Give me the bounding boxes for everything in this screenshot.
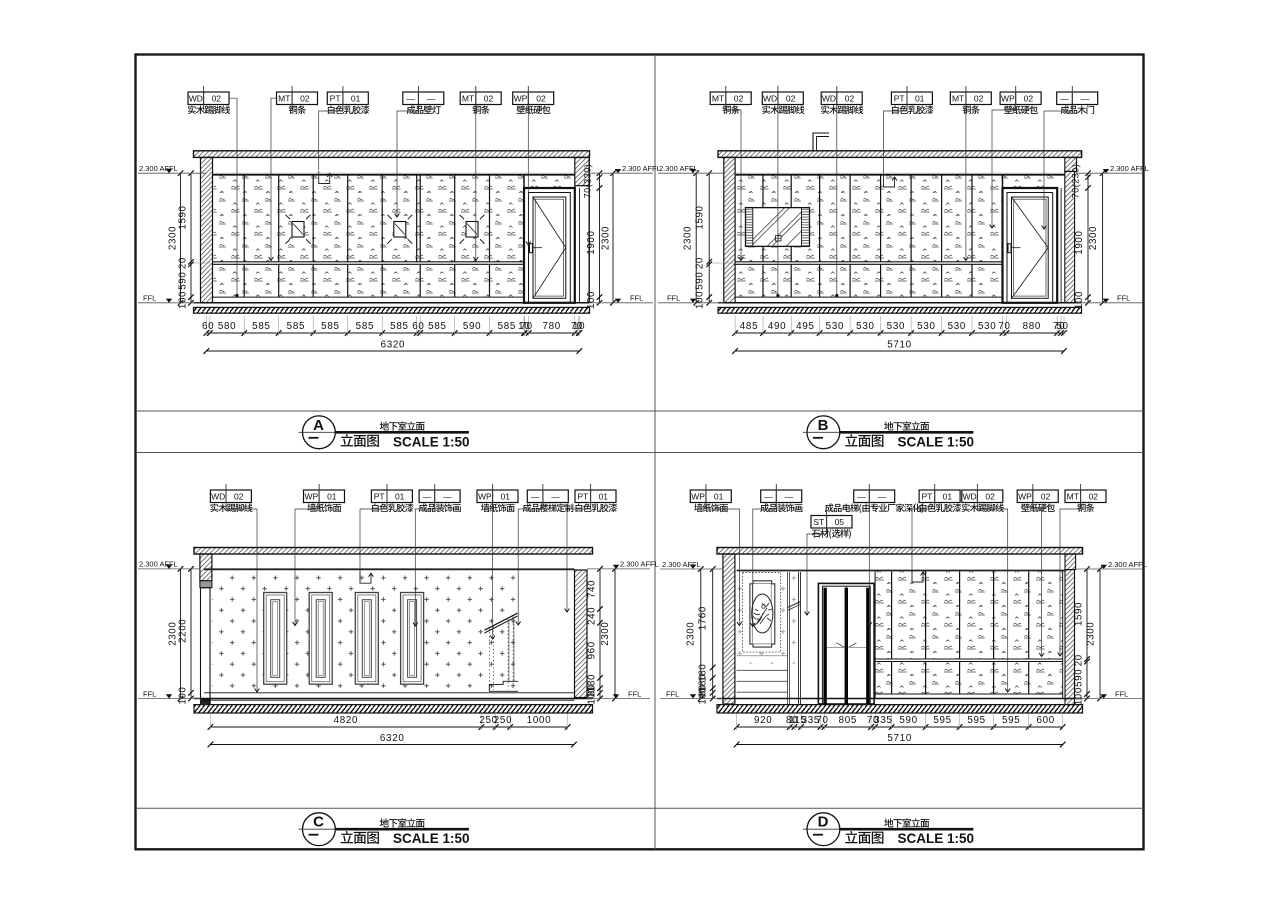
svg-text:70: 70	[998, 321, 1010, 332]
svg-text:585: 585	[498, 321, 516, 332]
svg-text:MT: MT	[462, 93, 474, 103]
svg-text:595: 595	[933, 715, 951, 726]
svg-text:D: D	[818, 814, 829, 831]
svg-text:20: 20	[178, 257, 189, 269]
svg-text:530: 530	[948, 321, 966, 332]
svg-text:585: 585	[428, 321, 446, 332]
svg-text:—: —	[785, 491, 794, 501]
svg-text:MT: MT	[952, 93, 964, 103]
svg-text:590: 590	[178, 272, 189, 290]
svg-text:WD: WD	[822, 93, 836, 103]
svg-text:2.300 AFFL: 2.300 AFFL	[1110, 164, 1149, 173]
svg-text:10: 10	[573, 321, 585, 332]
svg-text:SCALE 1:50: SCALE 1:50	[393, 434, 470, 449]
svg-text:—: —	[878, 491, 887, 501]
svg-text:805: 805	[839, 715, 857, 726]
svg-text:05: 05	[835, 517, 845, 527]
svg-text:4820: 4820	[334, 715, 359, 726]
svg-text:—: —	[406, 93, 415, 103]
svg-text:5710: 5710	[887, 733, 912, 744]
svg-text:2300: 2300	[600, 226, 611, 250]
svg-text:530: 530	[826, 321, 844, 332]
svg-text:50: 50	[1056, 321, 1068, 332]
svg-text:—: —	[531, 491, 540, 501]
svg-text:02: 02	[985, 491, 995, 501]
svg-text:495: 495	[796, 321, 814, 332]
svg-text:2.300 AFFL: 2.300 AFFL	[139, 560, 178, 569]
svg-text:FFL: FFL	[667, 294, 680, 303]
svg-text:MT: MT	[1067, 491, 1079, 501]
svg-text:02: 02	[234, 491, 244, 501]
svg-text:60: 60	[412, 321, 424, 332]
svg-text:590: 590	[899, 715, 917, 726]
svg-text:02: 02	[786, 93, 796, 103]
svg-text:2300: 2300	[1086, 622, 1097, 646]
svg-text:585: 585	[287, 321, 305, 332]
svg-text:WD: WD	[211, 491, 225, 501]
svg-text:FFL: FFL	[630, 294, 643, 303]
svg-text:01: 01	[351, 93, 361, 103]
svg-text:740: 740	[587, 580, 598, 598]
svg-text:MT: MT	[712, 93, 724, 103]
svg-text:2.300 AFFL: 2.300 AFFL	[620, 560, 659, 569]
svg-text:1000: 1000	[527, 715, 552, 726]
svg-text:MT: MT	[278, 93, 290, 103]
svg-text:PT: PT	[921, 491, 932, 501]
svg-text:WD: WD	[189, 93, 203, 103]
svg-text:02: 02	[1024, 93, 1034, 103]
svg-text:600: 600	[1036, 715, 1054, 726]
svg-text:100: 100	[1074, 291, 1085, 309]
svg-text:100: 100	[1074, 687, 1085, 705]
svg-text:2200: 2200	[178, 619, 189, 643]
svg-text:100: 100	[697, 687, 708, 705]
svg-text:780: 780	[542, 321, 560, 332]
svg-text:02: 02	[974, 93, 984, 103]
svg-text:530: 530	[856, 321, 874, 332]
svg-text:530: 530	[917, 321, 935, 332]
svg-text:WP: WP	[514, 93, 528, 103]
svg-text:250: 250	[494, 715, 512, 726]
svg-text:595: 595	[967, 715, 985, 726]
svg-text:2300: 2300	[600, 622, 611, 646]
svg-text:A: A	[313, 417, 324, 434]
svg-text:2.300 AFFL: 2.300 AFFL	[139, 164, 178, 173]
svg-text:5710: 5710	[887, 340, 912, 351]
svg-text:590: 590	[1074, 669, 1085, 687]
svg-text:C: C	[313, 814, 324, 831]
svg-text:6320: 6320	[380, 733, 405, 744]
svg-text:585: 585	[321, 321, 339, 332]
svg-text:WD: WD	[763, 93, 777, 103]
svg-text:B: B	[818, 417, 829, 434]
svg-text:1590: 1590	[1074, 602, 1085, 626]
svg-text:60: 60	[202, 321, 214, 332]
svg-text:—: —	[764, 491, 773, 501]
svg-text:01: 01	[915, 93, 925, 103]
svg-text:590: 590	[463, 321, 481, 332]
svg-text:02: 02	[1041, 491, 1051, 501]
svg-text:02: 02	[1089, 491, 1099, 501]
svg-text:595: 595	[1002, 715, 1020, 726]
svg-text:FFL: FFL	[666, 689, 679, 698]
svg-text:1900: 1900	[1074, 230, 1085, 254]
svg-text:FFL: FFL	[143, 294, 156, 303]
svg-text:—: —	[443, 491, 452, 501]
svg-text:SCALE 1:50: SCALE 1:50	[393, 831, 470, 846]
svg-text:485: 485	[740, 321, 758, 332]
svg-text:2300: 2300	[168, 226, 179, 250]
svg-text:1900: 1900	[586, 230, 597, 254]
svg-text:PT: PT	[577, 491, 588, 501]
svg-text:2.300 AFFL: 2.300 AFFL	[659, 164, 698, 173]
svg-text:01: 01	[714, 491, 724, 501]
svg-text:WP: WP	[304, 491, 318, 501]
svg-text:70(230): 70(230)	[1071, 164, 1081, 199]
svg-text:2.300 AFFL: 2.300 AFFL	[622, 164, 661, 173]
svg-text:02: 02	[845, 93, 855, 103]
svg-text:240: 240	[587, 607, 598, 625]
svg-text:WP: WP	[1001, 93, 1015, 103]
svg-text:02: 02	[300, 93, 310, 103]
svg-text:490: 490	[768, 321, 786, 332]
svg-text:530: 530	[887, 321, 905, 332]
svg-text:335: 335	[874, 715, 892, 726]
svg-text:WP: WP	[691, 491, 705, 501]
svg-text:70: 70	[816, 715, 828, 726]
svg-text:2300: 2300	[1088, 226, 1099, 250]
svg-text:FFL: FFL	[1115, 689, 1128, 698]
svg-text:1760: 1760	[697, 606, 708, 630]
svg-text:FFL: FFL	[143, 689, 156, 698]
svg-text:WP: WP	[1018, 491, 1032, 501]
svg-text:SCALE 1:50: SCALE 1:50	[898, 831, 975, 846]
svg-text:FFL: FFL	[628, 689, 641, 698]
svg-text:—: —	[1081, 93, 1090, 103]
svg-text:02: 02	[484, 93, 494, 103]
svg-text:585: 585	[252, 321, 270, 332]
svg-text:20: 20	[1074, 654, 1085, 666]
svg-text:960: 960	[587, 641, 598, 659]
svg-text:01: 01	[395, 491, 405, 501]
svg-text:580: 580	[218, 321, 236, 332]
svg-text:2300: 2300	[168, 622, 179, 646]
svg-text:920: 920	[754, 715, 772, 726]
svg-text:880: 880	[1023, 321, 1041, 332]
svg-text:—: —	[1060, 93, 1069, 103]
svg-text:PT: PT	[374, 491, 385, 501]
svg-text:2300: 2300	[686, 622, 697, 646]
svg-text:—: —	[427, 93, 436, 103]
svg-text:02: 02	[536, 93, 546, 103]
svg-text:70(230): 70(230)	[583, 164, 593, 199]
svg-text:—: —	[857, 491, 866, 501]
svg-text:FFL: FFL	[1117, 294, 1130, 303]
svg-text:100: 100	[586, 291, 597, 309]
svg-text:ST: ST	[813, 517, 824, 527]
svg-text:2.300 AFFL: 2.300 AFFL	[662, 560, 701, 569]
svg-text:01: 01	[943, 491, 953, 501]
svg-text:1590: 1590	[178, 205, 189, 229]
svg-text:01: 01	[327, 491, 337, 501]
svg-text:585: 585	[390, 321, 408, 332]
svg-text:—: —	[423, 491, 432, 501]
svg-text:02: 02	[212, 93, 222, 103]
svg-text:2300: 2300	[683, 226, 694, 250]
svg-text:02: 02	[734, 93, 744, 103]
svg-text:100: 100	[587, 687, 598, 705]
svg-text:01: 01	[501, 491, 511, 501]
svg-text:01: 01	[599, 491, 609, 501]
svg-text:PT: PT	[330, 93, 341, 103]
svg-text:2.300 AFFL: 2.300 AFFL	[1108, 560, 1147, 569]
svg-text:SCALE 1:50: SCALE 1:50	[898, 434, 975, 449]
svg-text:6320: 6320	[381, 340, 406, 351]
svg-text:—: —	[551, 491, 560, 501]
svg-text:585: 585	[356, 321, 374, 332]
svg-text:WD: WD	[963, 491, 977, 501]
svg-text:PT: PT	[894, 93, 905, 103]
svg-text:WP: WP	[478, 491, 492, 501]
svg-text:530: 530	[978, 321, 996, 332]
svg-text:70: 70	[521, 321, 533, 332]
